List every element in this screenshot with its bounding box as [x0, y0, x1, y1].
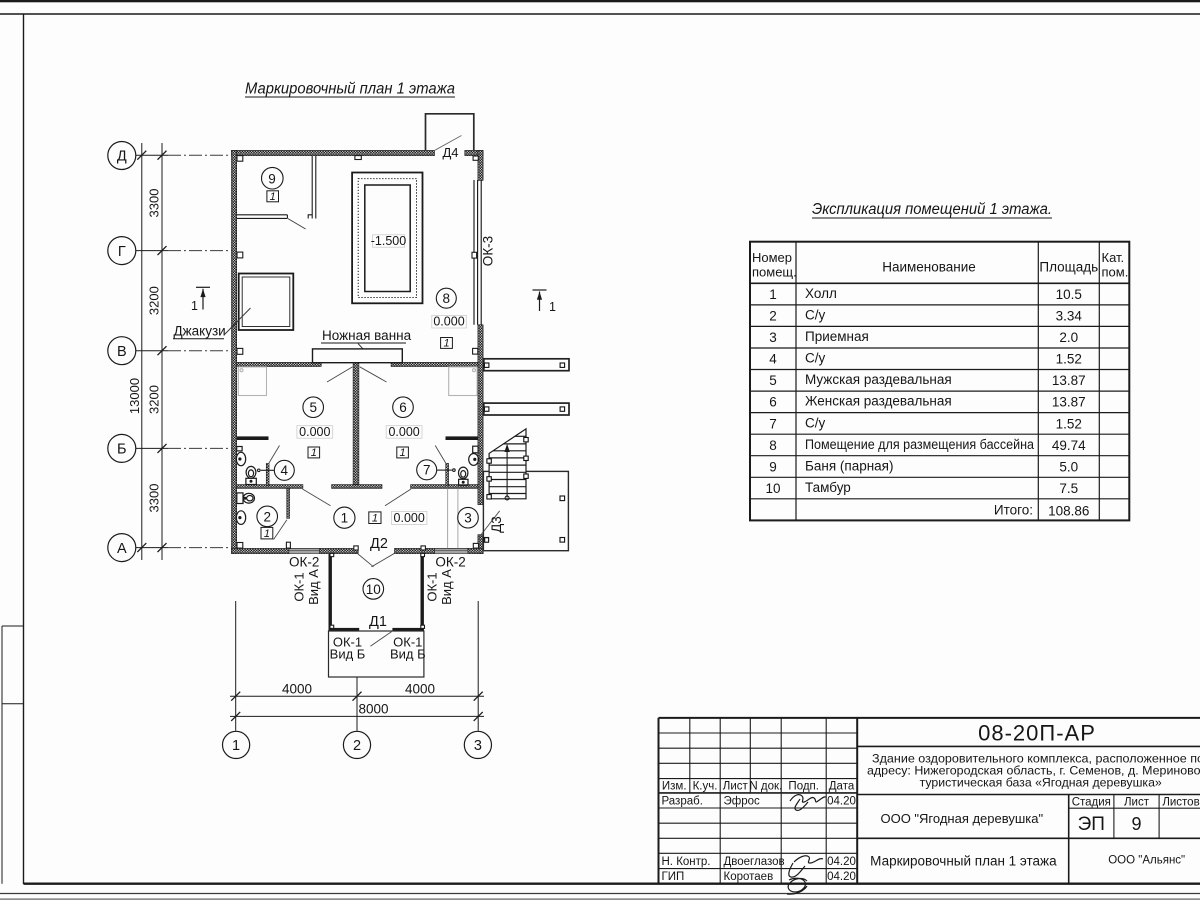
svg-text:Мужская раздевальная: Мужская раздевальная — [805, 372, 952, 387]
svg-text:Экспликация помещений 1 этажа.: Экспликация помещений 1 этажа. — [812, 201, 1052, 218]
svg-text:Д: Д — [117, 149, 127, 165]
svg-text:1: 1 — [372, 513, 378, 525]
svg-text:1: 1 — [443, 338, 449, 350]
svg-text:49.74: 49.74 — [1052, 438, 1086, 453]
svg-text:Эфрос: Эфрос — [724, 796, 761, 808]
svg-text:10: 10 — [765, 481, 780, 496]
svg-text:Д1: Д1 — [369, 614, 387, 630]
svg-text:С/у: С/у — [805, 351, 826, 366]
svg-text:ОК-2: ОК-2 — [289, 555, 319, 570]
svg-text:Вид Б: Вид Б — [390, 647, 426, 662]
svg-text:5.0: 5.0 — [1059, 459, 1078, 474]
svg-text:ОК-2: ОК-2 — [435, 555, 465, 570]
svg-text:Изм.: Изм. — [662, 781, 687, 793]
svg-text:7: 7 — [769, 416, 777, 431]
svg-text:0.000: 0.000 — [433, 315, 464, 329]
svg-text:1: 1 — [270, 191, 276, 203]
svg-text:13000: 13000 — [127, 378, 142, 414]
svg-text:2: 2 — [769, 309, 777, 324]
svg-text:3.34: 3.34 — [1056, 309, 1083, 324]
svg-text:2.0: 2.0 — [1059, 330, 1078, 345]
svg-text:3200: 3200 — [147, 385, 162, 414]
svg-text:Д4: Д4 — [442, 145, 458, 160]
svg-text:6: 6 — [399, 400, 407, 415]
svg-text:13.87: 13.87 — [1052, 373, 1086, 388]
svg-text:Дата: Дата — [829, 781, 855, 793]
svg-text:1: 1 — [769, 287, 777, 302]
svg-text:0.000: 0.000 — [299, 425, 330, 439]
svg-text:108.86: 108.86 — [1048, 504, 1089, 519]
svg-text:Разраб.: Разраб. — [662, 796, 703, 808]
svg-text:3300: 3300 — [147, 484, 162, 513]
svg-text:3: 3 — [769, 330, 777, 345]
svg-text:Вид А: Вид А — [306, 569, 321, 605]
svg-text:7.5: 7.5 — [1059, 481, 1078, 496]
svg-text:N док.: N док. — [749, 781, 782, 793]
svg-text:04.20: 04.20 — [827, 856, 856, 868]
svg-text:10: 10 — [366, 582, 381, 597]
svg-text:Лист: Лист — [1124, 796, 1150, 808]
svg-text:5: 5 — [309, 400, 317, 415]
svg-text:Маркировочный план 1 этажа: Маркировочный план 1 этажа — [870, 854, 1057, 869]
svg-text:8: 8 — [769, 438, 777, 453]
svg-text:Коротаев: Коротаев — [724, 871, 774, 883]
svg-text:туристическая база «Ягодная де: туристическая база «Ягодная деревушка» — [920, 776, 1162, 790]
svg-text:Ножная ванна: Ножная ванна — [322, 328, 412, 343]
svg-text:Вид Б: Вид Б — [330, 647, 366, 662]
svg-text:1: 1 — [191, 299, 198, 313]
svg-text:В: В — [117, 344, 127, 360]
svg-text:2: 2 — [353, 738, 361, 754]
svg-text:1: 1 — [232, 738, 240, 754]
svg-text:-1.500: -1.500 — [371, 234, 406, 248]
svg-text:С/у: С/у — [805, 415, 826, 430]
svg-text:10.5: 10.5 — [1056, 287, 1082, 302]
svg-text:8: 8 — [443, 291, 451, 306]
svg-text:7: 7 — [423, 463, 431, 478]
svg-text:Маркировочный план 1 этажа: Маркировочный план 1 этажа — [245, 81, 455, 98]
svg-text:Тамбур: Тамбур — [805, 480, 851, 495]
svg-text:Подп.: Подп. — [788, 781, 819, 793]
svg-text:4000: 4000 — [282, 681, 312, 696]
svg-text:Холл: Холл — [805, 286, 837, 301]
svg-text:3300: 3300 — [147, 189, 162, 218]
svg-text:5: 5 — [769, 373, 777, 388]
svg-text:Г: Г — [118, 244, 126, 260]
svg-text:1: 1 — [264, 528, 270, 540]
svg-text:Женская раздевальная: Женская раздевальная — [805, 394, 952, 409]
svg-text:1.52: 1.52 — [1056, 352, 1082, 367]
svg-text:ГИП: ГИП — [662, 871, 685, 883]
svg-text:3: 3 — [464, 511, 472, 526]
svg-text:04.20: 04.20 — [827, 796, 856, 808]
svg-text:8000: 8000 — [358, 702, 388, 717]
svg-text:Стадия: Стадия — [1072, 796, 1111, 808]
svg-text:4: 4 — [769, 352, 777, 367]
svg-text:9: 9 — [769, 459, 777, 474]
svg-text:Листов: Листов — [1162, 796, 1199, 808]
svg-text:К.уч.: К.уч. — [693, 781, 718, 793]
svg-text:А: А — [117, 541, 127, 557]
svg-text:Д2: Д2 — [370, 536, 388, 552]
svg-text:3200: 3200 — [147, 286, 162, 315]
svg-text:ОК-3: ОК-3 — [481, 236, 496, 266]
svg-text:1: 1 — [549, 300, 556, 314]
svg-text:пом.: пом. — [1102, 265, 1129, 280]
svg-text:Лист: Лист — [723, 781, 749, 793]
svg-text:1: 1 — [311, 447, 317, 459]
svg-text:13.87: 13.87 — [1052, 395, 1086, 410]
svg-text:Б: Б — [117, 442, 127, 458]
svg-text:Наименование: Наименование — [882, 260, 976, 275]
svg-text:Номер: Номер — [752, 250, 792, 265]
svg-text:1: 1 — [400, 447, 406, 459]
svg-text:ОК-1: ОК-1 — [424, 572, 439, 601]
svg-text:ОК-1: ОК-1 — [292, 572, 307, 601]
svg-text:С/у: С/у — [805, 308, 826, 323]
svg-text:Кат.: Кат. — [1102, 250, 1125, 265]
svg-text:4: 4 — [281, 463, 289, 478]
svg-text:6: 6 — [769, 395, 777, 410]
svg-text:0.000: 0.000 — [394, 511, 425, 525]
svg-text:Двоеглазов: Двоеглазов — [724, 856, 785, 868]
svg-text:Н. Контр.: Н. Контр. — [662, 856, 711, 868]
svg-text:9: 9 — [1131, 814, 1141, 834]
svg-text:Джакузи: Джакузи — [174, 324, 226, 339]
svg-text:помещ.: помещ. — [752, 265, 797, 280]
svg-text:0.000: 0.000 — [388, 425, 419, 439]
svg-text:ООО "Ягодная деревушка": ООО "Ягодная деревушка" — [880, 811, 1043, 826]
svg-text:Вид А: Вид А — [439, 569, 454, 605]
svg-text:ЭП: ЭП — [1078, 814, 1105, 835]
svg-text:Площадь: Площадь — [1039, 260, 1098, 275]
svg-text:08-20П-АР: 08-20П-АР — [978, 721, 1096, 746]
svg-text:ООО "Альянс": ООО "Альянс" — [1108, 855, 1185, 867]
svg-text:Д3: Д3 — [489, 516, 504, 533]
svg-text:1: 1 — [341, 511, 349, 526]
svg-text:Баня (парная): Баня (парная) — [805, 458, 893, 473]
svg-text:Итого:: Итого: — [994, 503, 1033, 518]
svg-text:1.52: 1.52 — [1056, 416, 1082, 431]
svg-text:3: 3 — [474, 738, 482, 754]
svg-text:9: 9 — [268, 171, 276, 186]
svg-text:Помещение для размещения бассе: Помещение для размещения бассейна — [805, 437, 1034, 452]
svg-text:2: 2 — [263, 509, 271, 524]
svg-text:Приемная: Приемная — [805, 329, 869, 344]
svg-text:04.20: 04.20 — [827, 871, 856, 883]
svg-text:4000: 4000 — [405, 681, 435, 696]
